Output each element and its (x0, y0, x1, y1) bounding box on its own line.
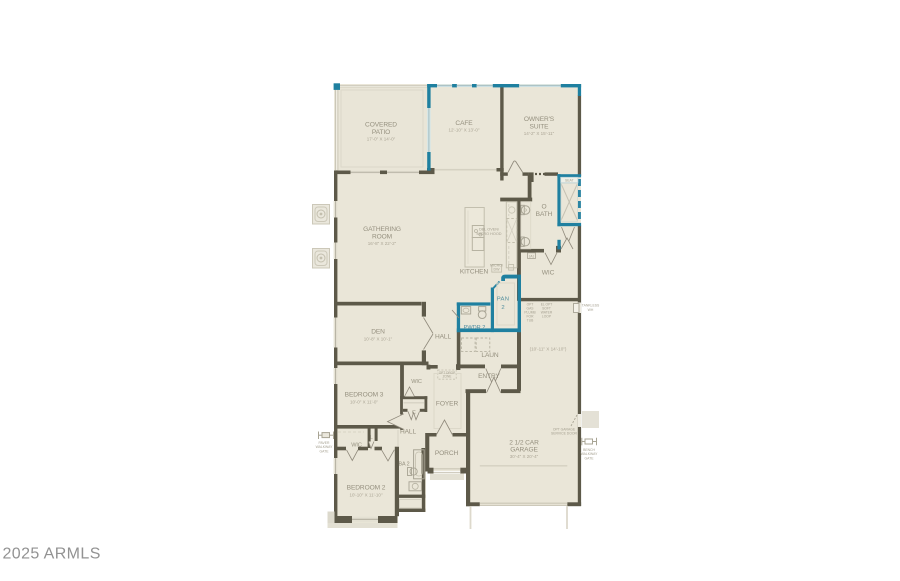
svg-text:SUITE: SUITE (530, 124, 550, 131)
svg-text:WH: WH (588, 308, 594, 312)
svg-text:LOOP: LOOP (542, 315, 552, 319)
svg-text:O: O (541, 204, 546, 211)
svg-text:PWDR 2: PWDR 2 (464, 325, 486, 331)
svg-text:BATH: BATH (536, 211, 553, 218)
svg-text:C: C (412, 410, 416, 416)
svg-text:PORCH: PORCH (435, 450, 459, 457)
svg-text:HALL: HALL (435, 334, 452, 341)
svg-text:17'-0" X 14'-0": 17'-0" X 14'-0" (367, 137, 396, 142)
svg-text:PATIO: PATIO (372, 129, 390, 136)
svg-text:10'-0" X 11'-0": 10'-0" X 11'-0" (350, 400, 378, 405)
svg-text:MICRO HOOD: MICRO HOOD (476, 232, 501, 236)
svg-text:WIC: WIC (411, 379, 422, 385)
svg-text:WIC: WIC (542, 270, 555, 277)
svg-text:HALL: HALL (400, 429, 417, 436)
svg-text:BEDROOM 3: BEDROOM 3 (345, 392, 384, 399)
svg-text:OWNER'S: OWNER'S (524, 116, 555, 123)
svg-text:2 1/2 CAR: 2 1/2 CAR (509, 440, 539, 447)
svg-text:DEN: DEN (371, 329, 385, 336)
svg-text:ZONE: ZONE (443, 375, 452, 379)
svg-text:12'-10" X 13'-0": 12'-10" X 13'-0" (449, 128, 480, 133)
svg-text:CAFE: CAFE (455, 120, 473, 127)
svg-text:BEDROOM 2: BEDROOM 2 (347, 485, 386, 492)
svg-text:2025 ARMLS: 2025 ARMLS (3, 546, 101, 563)
svg-text:16'-8" X 22'-2": 16'-8" X 22'-2" (368, 241, 397, 246)
svg-text:2: 2 (501, 305, 504, 311)
svg-text:TUB: TUB (527, 319, 534, 323)
svg-text:SEAT: SEAT (565, 179, 574, 183)
svg-text:ENTRY: ENTRY (478, 373, 500, 380)
svg-text:SERVICE DOOR: SERVICE DOOR (551, 432, 577, 436)
svg-text:DBL OVEN/: DBL OVEN/ (479, 228, 500, 232)
svg-text:(10'-11" X 14'-10"): (10'-11" X 14'-10") (530, 347, 567, 352)
svg-text:GARAGE: GARAGE (510, 447, 538, 454)
svg-text:DW: DW (494, 268, 501, 272)
svg-text:PAN: PAN (497, 297, 510, 303)
svg-text:WIC: WIC (351, 443, 362, 449)
svg-text:GATHERING: GATHERING (363, 226, 401, 233)
svg-text:LAUN: LAUN (481, 352, 499, 359)
svg-text:FOYER: FOYER (436, 401, 459, 408)
svg-text:COVERED: COVERED (365, 122, 397, 129)
svg-text:10'-10" X 11'-10": 10'-10" X 11'-10" (349, 493, 383, 498)
svg-text:10'-8" X 10'-1": 10'-8" X 10'-1" (364, 337, 393, 342)
svg-text:14'-2" X 15'-11": 14'-2" X 15'-11" (524, 131, 555, 136)
svg-text:30'-4" X 20'-4": 30'-4" X 20'-4" (510, 454, 539, 459)
svg-text:L: L (370, 435, 373, 441)
svg-text:GATE: GATE (320, 449, 330, 453)
svg-text:ROOM: ROOM (372, 234, 392, 241)
svg-text:GATE: GATE (585, 456, 595, 460)
svg-text:BA 2: BA 2 (399, 462, 410, 468)
svg-text:KITCHEN: KITCHEN (460, 269, 489, 276)
svg-text:[A]: [A] (529, 254, 533, 258)
